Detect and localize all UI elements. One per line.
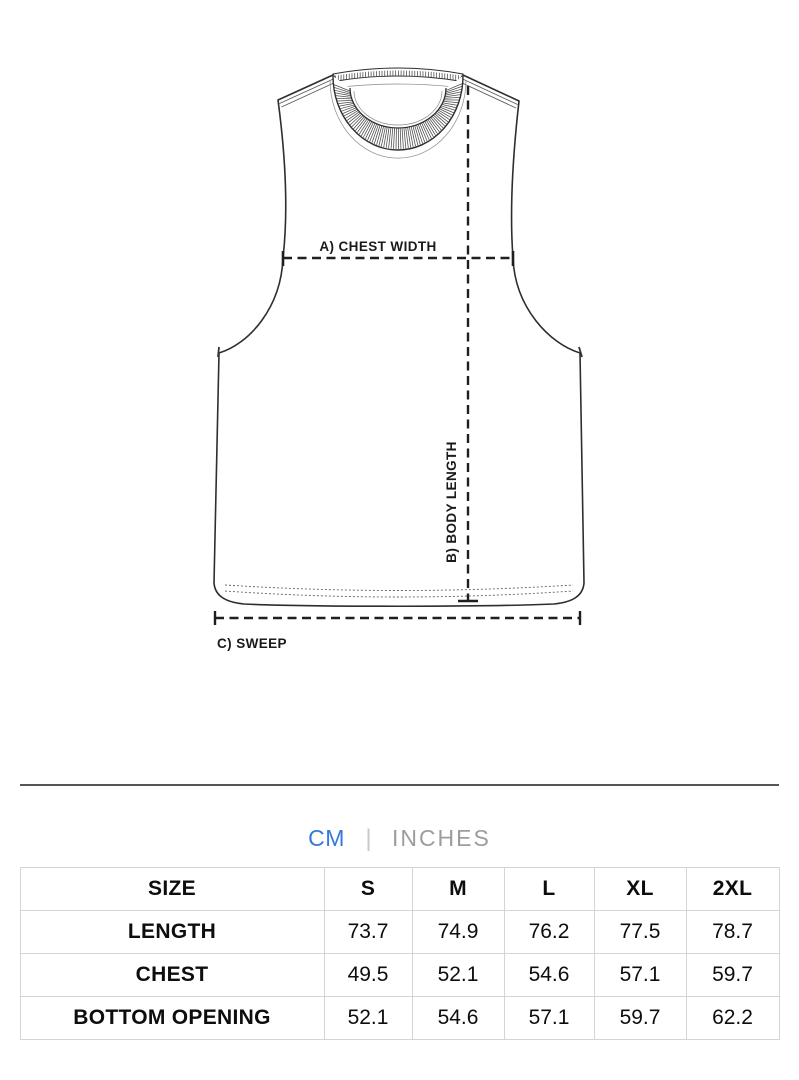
value-cell: 52.1 bbox=[412, 954, 504, 997]
chest-width-label: A) CHEST WIDTH bbox=[319, 239, 436, 254]
table-row-chest: CHEST 49.5 52.1 54.6 57.1 59.7 bbox=[20, 954, 779, 997]
table-row-length: LENGTH 73.7 74.9 76.2 77.5 78.7 bbox=[20, 911, 779, 954]
value-cell: 77.5 bbox=[594, 911, 686, 954]
value-cell: 78.7 bbox=[686, 911, 779, 954]
table-row-bottom-opening: BOTTOM OPENING 52.1 54.6 57.1 59.7 62.2 bbox=[20, 997, 779, 1040]
value-cell: 76.2 bbox=[504, 911, 594, 954]
unit-cm-button[interactable]: CM bbox=[308, 825, 345, 851]
value-cell: 49.5 bbox=[324, 954, 412, 997]
size-col-s: S bbox=[324, 868, 412, 911]
value-cell: 52.1 bbox=[324, 997, 412, 1040]
unit-toggle: CM | INCHES bbox=[0, 820, 799, 857]
row-label-length: LENGTH bbox=[20, 911, 324, 954]
table-header-row: SIZE S M L XL 2XL bbox=[20, 868, 779, 911]
unit-separator: | bbox=[365, 825, 371, 852]
size-col-l: L bbox=[504, 868, 594, 911]
sweep-line bbox=[215, 611, 580, 625]
value-cell: 54.6 bbox=[412, 997, 504, 1040]
value-cell: 73.7 bbox=[324, 911, 412, 954]
size-header-cell: SIZE bbox=[20, 868, 324, 911]
size-col-2xl: 2XL bbox=[686, 868, 779, 911]
value-cell: 57.1 bbox=[504, 997, 594, 1040]
value-cell: 59.7 bbox=[594, 997, 686, 1040]
sweep-label: C) SWEEP bbox=[217, 636, 287, 651]
size-col-m: M bbox=[412, 868, 504, 911]
section-divider bbox=[20, 784, 779, 786]
value-cell: 62.2 bbox=[686, 997, 779, 1040]
size-col-xl: XL bbox=[594, 868, 686, 911]
body-length-label: B) BODY LENGTH bbox=[444, 441, 459, 563]
row-label-chest: CHEST bbox=[20, 954, 324, 997]
value-cell: 57.1 bbox=[594, 954, 686, 997]
value-cell: 59.7 bbox=[686, 954, 779, 997]
row-label-bottom-opening: BOTTOM OPENING bbox=[20, 997, 324, 1040]
value-cell: 74.9 bbox=[412, 911, 504, 954]
size-guide-page: A) CHEST WIDTH B) BODY LENGTH C) SWEEP C… bbox=[0, 0, 799, 1080]
unit-inches-button[interactable]: INCHES bbox=[392, 825, 491, 851]
value-cell: 54.6 bbox=[504, 954, 594, 997]
garment-diagram: A) CHEST WIDTH B) BODY LENGTH C) SWEEP bbox=[0, 0, 799, 655]
seam-notch-left bbox=[218, 347, 219, 357]
size-table: SIZE S M L XL 2XL LENGTH 73.7 74.9 76.2 … bbox=[20, 867, 780, 1040]
